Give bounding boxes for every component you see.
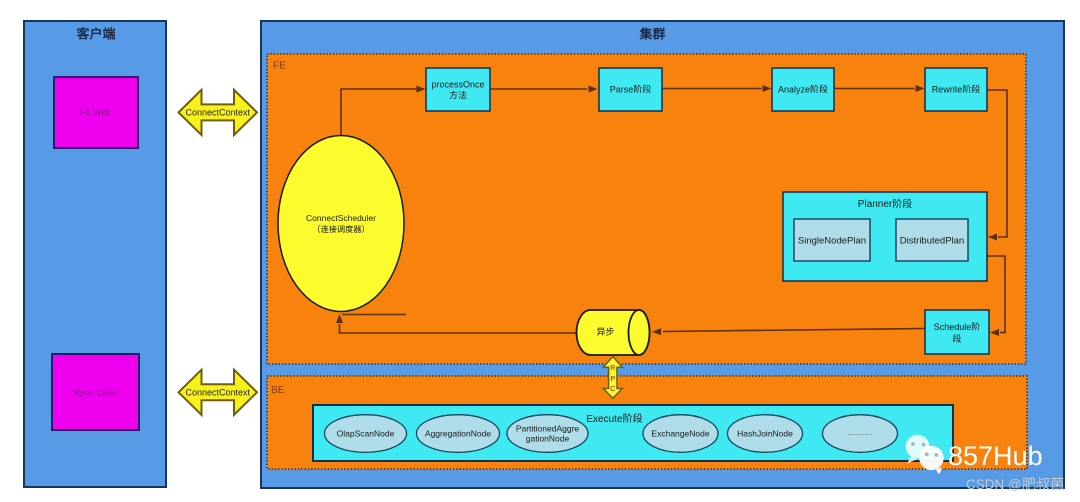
svg-text:OlapScanNode: OlapScanNode: [337, 429, 395, 439]
svg-text:Mysql Client: Mysql Client: [72, 388, 119, 398]
svg-text:.............: .............: [847, 430, 872, 437]
svg-text:processOnce: processOnce: [432, 80, 485, 90]
svg-text:C: C: [610, 386, 615, 393]
svg-text:P: P: [610, 376, 615, 383]
svg-text:ConnectContext: ConnectContext: [186, 388, 251, 398]
svg-text:HashJoinNode: HashJoinNode: [737, 429, 793, 439]
svg-text:Parse: Parse: [610, 84, 634, 94]
svg-text:PartitionedAggre: PartitionedAggre: [516, 424, 580, 434]
svg-text:Rewrite: Rewrite: [932, 84, 963, 94]
svg-text:DistributedPlan: DistributedPlan: [900, 235, 964, 246]
svg-text:AggregationNode: AggregationNode: [425, 429, 491, 439]
svg-text:gationNode: gationNode: [526, 434, 570, 444]
svg-text:ConnectScheduler: ConnectScheduler: [306, 213, 376, 223]
svg-text:ConnectContext: ConnectContext: [186, 108, 251, 118]
svg-text:Planner: Planner: [858, 199, 893, 210]
svg-text:BE: BE: [271, 385, 285, 396]
svg-text:Execute: Execute: [586, 414, 623, 425]
svg-text:FE Web: FE Web: [80, 107, 111, 117]
svg-text:Analyze: Analyze: [778, 84, 810, 94]
svg-text:R: R: [610, 365, 615, 372]
svg-text:857Hub: 857Hub: [948, 441, 1043, 471]
svg-text:ExchangeNode: ExchangeNode: [651, 429, 709, 439]
svg-text:FE: FE: [273, 61, 286, 72]
svg-text:CSDN @: CSDN @: [966, 477, 1022, 492]
svg-text:SingleNodePlan: SingleNodePlan: [798, 235, 866, 246]
svg-text:Schedule: Schedule: [934, 322, 972, 332]
